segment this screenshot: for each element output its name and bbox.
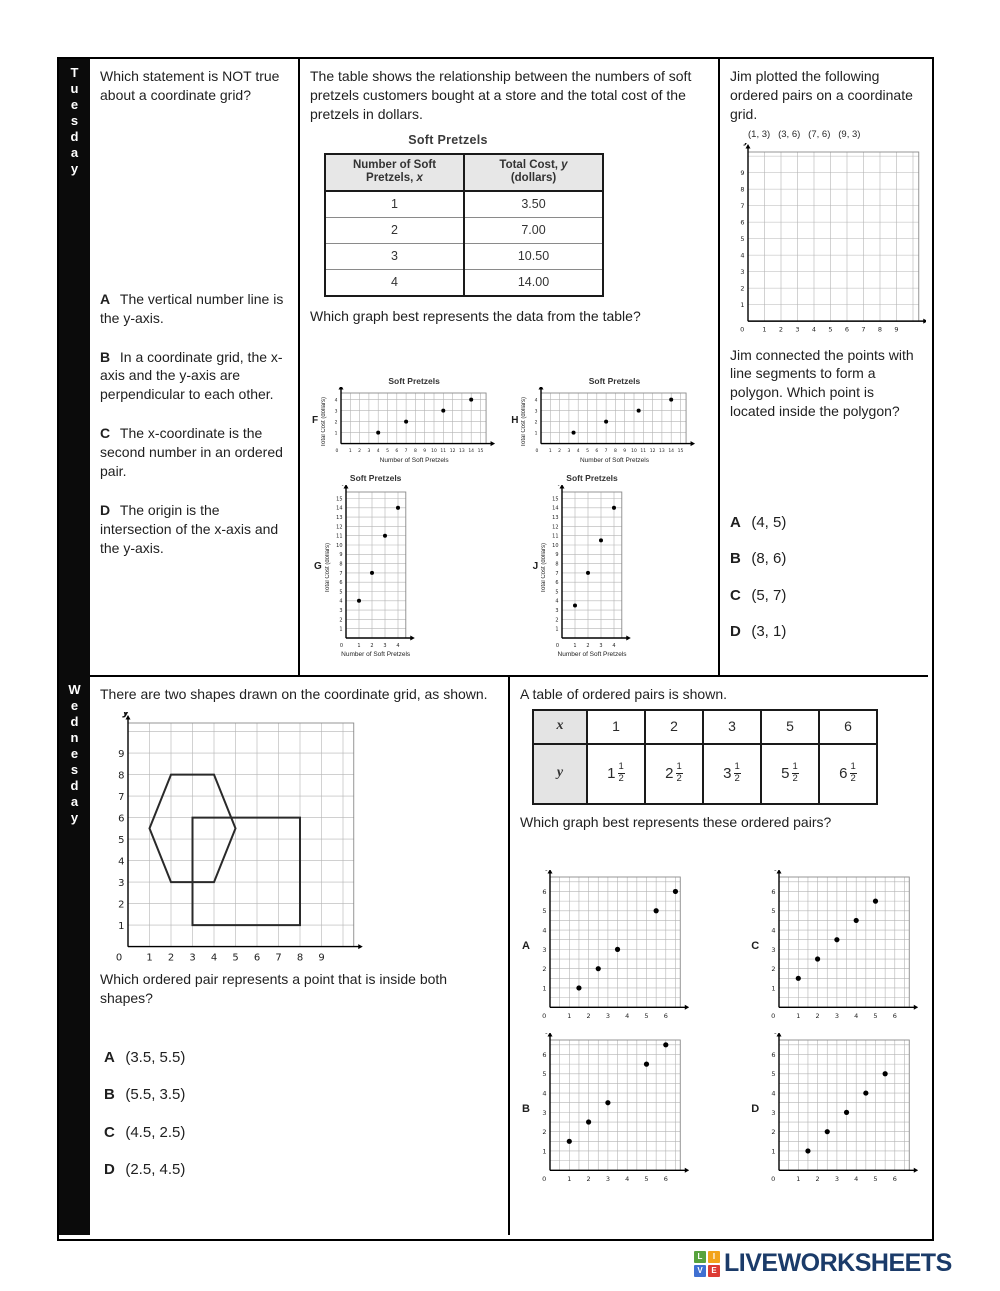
svg-text:6: 6 [254, 952, 260, 963]
tuesday-question-1-cell: Which statement is NOT true about a coor… [90, 59, 300, 677]
svg-text:3: 3 [600, 643, 603, 649]
graph-xlabel: Number of Soft Pretzels [333, 457, 495, 466]
choice-a[interactable]: A(3.5, 5.5) [104, 1048, 498, 1068]
svg-text:5: 5 [874, 1175, 878, 1183]
svg-text:7: 7 [275, 952, 281, 963]
svg-text:8: 8 [878, 326, 882, 334]
svg-text:9: 9 [555, 552, 558, 558]
svg-text:y: y [743, 143, 749, 146]
svg-text:3: 3 [606, 1175, 610, 1183]
svg-text:1: 1 [535, 430, 538, 436]
svg-text:10: 10 [552, 543, 558, 549]
choice-d[interactable]: DThe origin is the intersection of the x… [100, 501, 288, 558]
svg-text:6: 6 [555, 580, 558, 586]
svg-text:3: 3 [118, 878, 124, 889]
svg-text:4: 4 [535, 397, 538, 403]
liveworksheets-logo-icon: L I V E [694, 1251, 720, 1277]
question-text: Which ordered pair represents a point th… [100, 970, 498, 1008]
svg-text:4: 4 [625, 1175, 629, 1183]
logo-square-v: V [694, 1265, 706, 1277]
svg-text:6: 6 [664, 1012, 668, 1020]
graph-ylabel: Total Cost (dollars) [321, 397, 327, 447]
svg-text:3: 3 [772, 1109, 776, 1117]
svg-text:2: 2 [772, 1128, 776, 1136]
tuesday-question-3-cell: Jim plotted the following ordered pairs … [720, 59, 928, 677]
svg-text:1: 1 [796, 1175, 800, 1183]
svg-text:5: 5 [542, 907, 546, 915]
svg-text:8: 8 [339, 561, 342, 567]
choice-text: (3.5, 5.5) [125, 1049, 185, 1066]
column-header: Number of SoftPretzels, x [325, 154, 464, 192]
graph-xlabel: Number of Soft Pretzels [337, 651, 415, 660]
svg-text:1: 1 [740, 302, 744, 310]
logo-square-e: E [708, 1265, 720, 1277]
svg-text:2: 2 [168, 952, 174, 963]
svg-text:2: 2 [559, 448, 562, 454]
svg-text:3: 3 [189, 952, 195, 963]
choice-b[interactable]: B(8, 6) [730, 549, 918, 569]
choice-letter: D [104, 1161, 115, 1178]
svg-text:8: 8 [414, 448, 417, 454]
svg-text:3: 3 [339, 608, 342, 614]
graph-title: Soft Pretzels [553, 473, 631, 484]
svg-text:2: 2 [542, 965, 546, 973]
table-title: Soft Pretzels [310, 132, 586, 149]
svg-text:5: 5 [644, 1012, 648, 1020]
svg-text:2: 2 [118, 899, 124, 910]
svg-text:1: 1 [146, 952, 152, 963]
svg-text:1: 1 [574, 643, 577, 649]
svg-text:6: 6 [596, 448, 599, 454]
svg-text:5: 5 [874, 1012, 878, 1020]
wednesday-question-1-cell: There are two shapes drawn on the coordi… [90, 677, 510, 1235]
answer-choices: A(4, 5) B(8, 6) C(5, 7) D(3, 1) [730, 513, 918, 642]
svg-text:2: 2 [335, 419, 338, 425]
graph-g-plot: xy01234123456789101112131415 [331, 485, 415, 651]
ordered-pairs: (1, 3) (3, 6) (7, 6) (9, 3) [748, 129, 918, 142]
svg-text:5: 5 [772, 1070, 776, 1078]
wednesday-label: Wednesday [59, 683, 90, 824]
svg-text:14: 14 [552, 506, 558, 512]
svg-text:0: 0 [740, 326, 744, 334]
svg-text:4: 4 [577, 448, 580, 454]
graph-f-plot: xy01234567891011121314151234 [327, 387, 495, 457]
svg-text:6: 6 [118, 813, 124, 824]
svg-text:6: 6 [740, 219, 744, 227]
svg-text:15: 15 [678, 448, 684, 454]
svg-text:9: 9 [318, 952, 324, 963]
table-row-x: x 1 2 3 5 6 [533, 710, 877, 744]
svg-text:7: 7 [339, 571, 342, 577]
svg-text:2: 2 [358, 448, 361, 454]
graph-letter: G [314, 560, 322, 574]
graph-c-plot: xy0123456123456 [763, 870, 918, 1023]
svg-text:9: 9 [118, 749, 124, 760]
graph-ylabel: Total Cost (dollars) [521, 397, 527, 447]
tuesday-label: Tuesday [59, 66, 90, 175]
svg-text:5: 5 [772, 907, 776, 915]
svg-text:8: 8 [555, 561, 558, 567]
choice-text: (4.5, 2.5) [125, 1124, 185, 1141]
choice-letter: B [104, 1086, 115, 1103]
graph-j-plot: xy01234123456789101112131415 [547, 485, 631, 651]
choice-text: The vertical number line is the y-axis. [100, 291, 283, 326]
svg-text:5: 5 [386, 448, 389, 454]
svg-text:3: 3 [772, 946, 776, 954]
svg-text:6: 6 [542, 1051, 546, 1059]
choice-b[interactable]: BIn a coordinate grid, the x-axis and th… [100, 348, 288, 405]
svg-text:12: 12 [552, 524, 558, 530]
svg-text:15: 15 [478, 448, 484, 454]
svg-text:5: 5 [542, 1070, 546, 1078]
svg-text:y: y [545, 870, 551, 871]
choice-text: (2.5, 4.5) [125, 1161, 185, 1178]
svg-text:14: 14 [669, 448, 675, 454]
table-row: 414.00 [325, 269, 603, 295]
svg-text:13: 13 [552, 515, 558, 521]
choice-letter: A [104, 1049, 115, 1066]
choice-text: In a coordinate grid, the x-axis and the… [100, 349, 283, 403]
table-row: 27.00 [325, 218, 603, 244]
svg-text:7: 7 [605, 448, 608, 454]
svg-text:2: 2 [587, 643, 590, 649]
svg-text:6: 6 [772, 1051, 776, 1059]
graph-letter: A [522, 939, 530, 954]
svg-text:4: 4 [118, 856, 124, 867]
svg-text:5: 5 [644, 1175, 648, 1183]
graph-h-plot: xy01234567891011121314151234 [527, 387, 695, 457]
graph-option-j[interactable]: J Soft Pretzels Total Cost (dollars) xy0… [533, 473, 631, 659]
svg-text:5: 5 [118, 835, 124, 846]
choice-d[interactable]: D(2.5, 4.5) [104, 1160, 498, 1180]
svg-text:6: 6 [395, 448, 398, 454]
mixed-number: 212 [665, 762, 683, 785]
graph-a-plot: xy0123456123456 [534, 870, 689, 1023]
svg-text:8: 8 [614, 448, 617, 454]
question-intro: The table shows the relationship between… [310, 67, 708, 124]
svg-text:3: 3 [542, 1109, 546, 1117]
question-text: Which graph best represents the data fro… [310, 307, 708, 326]
svg-text:1: 1 [772, 984, 776, 992]
choice-text: The origin is the intersection of the x-… [100, 502, 278, 556]
choice-c[interactable]: C(4.5, 2.5) [104, 1123, 498, 1143]
choice-b[interactable]: B(5.5, 3.5) [104, 1085, 498, 1105]
svg-text:2: 2 [816, 1012, 820, 1020]
svg-text:0: 0 [536, 448, 539, 454]
graph-option-h[interactable]: H Soft Pretzels Total Cost (dollars) xy0… [511, 376, 695, 466]
liveworksheets-logo[interactable]: L I V E LIVEWORKSHEETS [694, 1249, 952, 1278]
svg-text:2: 2 [779, 326, 783, 334]
svg-text:5: 5 [586, 448, 589, 454]
choice-c[interactable]: C(5, 7) [730, 586, 918, 606]
graph-letter: B [522, 1102, 530, 1117]
svg-text:3: 3 [335, 408, 338, 414]
svg-text:4: 4 [772, 926, 776, 934]
graphs-row-b-d: B xy0123456123456 D xy0123456123456 [522, 1033, 918, 1186]
svg-text:4: 4 [625, 1012, 629, 1020]
svg-text:1: 1 [357, 643, 360, 649]
svg-text:15: 15 [336, 496, 342, 502]
svg-text:2: 2 [740, 285, 744, 293]
svg-text:15: 15 [552, 496, 558, 502]
question-text: Which statement is NOT true about a coor… [100, 67, 288, 105]
svg-text:8: 8 [297, 952, 303, 963]
choice-d[interactable]: D(3, 1) [730, 622, 918, 642]
svg-text:5: 5 [232, 952, 238, 963]
graph-title: Soft Pretzels [337, 473, 415, 484]
svg-text:0: 0 [336, 448, 339, 454]
mixed-number: 112 [607, 762, 625, 785]
day-band: Tuesday Wednesday [59, 59, 90, 1235]
svg-text:1: 1 [567, 1012, 571, 1020]
svg-text:1: 1 [118, 921, 124, 932]
mixed-number: 612 [839, 762, 857, 785]
svg-text:2: 2 [370, 643, 373, 649]
worksheet-page: Tuesday Wednesday Which statement is NOT… [0, 0, 1000, 1291]
question-text: Jim connected the points with line segme… [730, 346, 918, 422]
logo-square-i: I [708, 1251, 720, 1263]
graph-b-plot: xy0123456123456 [534, 1033, 689, 1186]
svg-text:2: 2 [542, 1128, 546, 1136]
graph-d-plot: xy0123456123456 [763, 1033, 918, 1186]
shapes-grid-plot: xy0123456789123456789 [108, 712, 363, 966]
graph-title: Soft Pretzels [333, 376, 495, 387]
svg-text:1: 1 [549, 448, 552, 454]
svg-text:3: 3 [555, 608, 558, 614]
choice-text: (4, 5) [751, 514, 786, 531]
svg-text:4: 4 [211, 952, 217, 963]
svg-text:6: 6 [893, 1012, 897, 1020]
choice-c[interactable]: CThe x-coordinate is the second number i… [100, 424, 288, 481]
svg-text:1: 1 [339, 626, 342, 632]
column-header: Total Cost, y(dollars) [464, 154, 603, 192]
svg-text:9: 9 [423, 448, 426, 454]
svg-text:9: 9 [624, 448, 627, 454]
choice-text: (3, 1) [751, 623, 786, 640]
svg-text:4: 4 [542, 1090, 546, 1098]
svg-text:11: 11 [336, 533, 342, 539]
svg-text:9: 9 [740, 170, 744, 178]
svg-text:13: 13 [659, 448, 665, 454]
svg-text:6: 6 [845, 326, 849, 334]
graphs-row-f-h: F Soft Pretzels Total Cost (dollars) xy0… [312, 376, 708, 466]
svg-text:1: 1 [542, 1147, 546, 1155]
graph-title: Soft Pretzels [533, 376, 695, 387]
choice-text: (5.5, 3.5) [125, 1086, 185, 1103]
svg-text:10: 10 [632, 448, 638, 454]
svg-text:3: 3 [740, 269, 744, 277]
choice-letter: C [730, 587, 741, 604]
svg-text:3: 3 [835, 1175, 839, 1183]
svg-text:14: 14 [336, 506, 342, 512]
choice-a[interactable]: AThe vertical number line is the y-axis. [100, 290, 288, 328]
svg-text:2: 2 [339, 617, 342, 623]
choice-text: The x-coordinate is the second number in… [100, 425, 283, 479]
svg-text:12: 12 [650, 448, 656, 454]
svg-text:0: 0 [542, 1012, 546, 1020]
graph-letter: C [751, 939, 759, 954]
svg-text:7: 7 [118, 792, 124, 803]
svg-text:11: 11 [552, 533, 558, 539]
svg-text:4: 4 [613, 643, 616, 649]
svg-text:y: y [545, 1033, 551, 1034]
svg-text:7: 7 [555, 571, 558, 577]
svg-text:3: 3 [606, 1012, 610, 1020]
svg-text:y: y [122, 712, 130, 718]
choice-letter: D [730, 623, 741, 640]
question-intro: There are two shapes drawn on the coordi… [100, 685, 498, 704]
svg-text:13: 13 [459, 448, 465, 454]
logo-square-l: L [694, 1251, 706, 1263]
svg-text:11: 11 [641, 448, 647, 454]
table-row: 310.50 [325, 243, 603, 269]
svg-text:1: 1 [772, 1147, 776, 1155]
svg-text:1: 1 [349, 448, 352, 454]
choice-letter: A [730, 514, 741, 531]
svg-text:3: 3 [535, 408, 538, 414]
choice-text: (5, 7) [751, 587, 786, 604]
svg-text:4: 4 [542, 926, 546, 934]
svg-text:7: 7 [861, 326, 865, 334]
graphs-row-g-j: G Soft Pretzels Total Cost (dollars) xy0… [314, 473, 708, 659]
svg-text:7: 7 [740, 203, 744, 211]
row-header-x: x [533, 710, 587, 744]
svg-text:12: 12 [450, 448, 456, 454]
graph-letter: H [511, 414, 518, 428]
svg-text:1: 1 [542, 984, 546, 992]
question-intro: A table of ordered pairs is shown. [520, 685, 918, 704]
jim-coordinate-grid: xy0123456789123456789 [732, 143, 918, 341]
svg-text:2: 2 [586, 1012, 590, 1020]
svg-text:4: 4 [335, 397, 338, 403]
graph-letter: F [312, 414, 318, 428]
svg-text:6: 6 [339, 580, 342, 586]
svg-text:1: 1 [796, 1012, 800, 1020]
liveworksheets-logo-text: LIVEWORKSHEETS [724, 1249, 952, 1278]
svg-text:0: 0 [556, 643, 559, 649]
mixed-number: 312 [723, 762, 741, 785]
svg-text:2: 2 [772, 965, 776, 973]
table-row: 13.50 [325, 191, 603, 217]
graph-option-b[interactable]: B xy0123456123456 [522, 1033, 689, 1186]
svg-text:6: 6 [772, 888, 776, 896]
svg-text:6: 6 [664, 1175, 668, 1183]
graph-option-g[interactable]: G Soft Pretzels Total Cost (dollars) xy0… [314, 473, 415, 659]
svg-text:3: 3 [368, 448, 371, 454]
choice-letter: A [100, 291, 110, 307]
graph-letter: D [751, 1102, 759, 1117]
shapes-coordinate-grid: xy0123456789123456789 [108, 712, 498, 970]
choice-letter: C [100, 425, 110, 441]
graph-xlabel: Number of Soft Pretzels [533, 457, 695, 466]
svg-text:y: y [775, 1033, 781, 1034]
svg-text:3: 3 [542, 946, 546, 954]
wednesday-question-2-cell: A table of ordered pairs is shown. x 1 2… [510, 677, 928, 1235]
svg-text:5: 5 [828, 326, 832, 334]
svg-text:2: 2 [555, 617, 558, 623]
svg-text:4: 4 [854, 1175, 858, 1183]
svg-text:2: 2 [535, 419, 538, 425]
ordered-pairs-table: x 1 2 3 5 6 y 112 212 312 512 612 [532, 709, 878, 805]
tuesday-question-2-cell: The table shows the relationship between… [300, 59, 720, 677]
graph-option-a[interactable]: A xy0123456123456 [522, 870, 689, 1023]
svg-text:2: 2 [816, 1175, 820, 1183]
choice-letter: D [100, 502, 110, 518]
row-header-y: y [533, 744, 587, 804]
svg-text:4: 4 [339, 599, 342, 605]
svg-text:4: 4 [555, 599, 558, 605]
question-text: Which graph best represents these ordere… [520, 813, 918, 832]
choice-a[interactable]: A(4, 5) [730, 513, 918, 533]
table-row-y: y 112 212 312 512 612 [533, 744, 877, 804]
svg-text:6: 6 [893, 1175, 897, 1183]
svg-text:5: 5 [740, 236, 744, 244]
svg-text:y: y [775, 870, 781, 871]
svg-text:0: 0 [116, 952, 122, 963]
svg-text:0: 0 [771, 1012, 775, 1020]
svg-text:4: 4 [740, 252, 744, 260]
svg-text:3: 3 [383, 643, 386, 649]
jim-grid-plot: xy0123456789123456789 [732, 143, 926, 336]
graph-option-f[interactable]: F Soft Pretzels Total Cost (dollars) xy0… [312, 376, 495, 466]
svg-text:3: 3 [795, 326, 799, 334]
worksheet-table: Tuesday Wednesday Which statement is NOT… [57, 57, 934, 1241]
svg-text:3: 3 [835, 1012, 839, 1020]
svg-text:3: 3 [568, 448, 571, 454]
svg-text:9: 9 [894, 326, 898, 334]
svg-text:14: 14 [468, 448, 474, 454]
svg-text:4: 4 [812, 326, 816, 334]
svg-text:8: 8 [740, 186, 744, 194]
choice-letter: C [104, 1124, 115, 1141]
graph-xlabel: Number of Soft Pretzels [553, 651, 631, 660]
svg-text:7: 7 [405, 448, 408, 454]
svg-text:4: 4 [772, 1090, 776, 1098]
svg-text:4: 4 [396, 643, 399, 649]
choice-text: (8, 6) [751, 550, 786, 567]
svg-text:11: 11 [441, 448, 447, 454]
svg-text:1: 1 [762, 326, 766, 334]
svg-text:5: 5 [555, 589, 558, 595]
svg-text:1: 1 [567, 1175, 571, 1183]
answer-choices: AThe vertical number line is the y-axis.… [100, 290, 288, 558]
graph-letter: J [533, 560, 539, 574]
svg-text:0: 0 [542, 1175, 546, 1183]
answer-graphs: A xy0123456123456 C xy0123456123456 B xy… [520, 870, 918, 1187]
svg-text:4: 4 [377, 448, 380, 454]
svg-text:9: 9 [339, 552, 342, 558]
svg-text:13: 13 [336, 515, 342, 521]
svg-text:6: 6 [542, 888, 546, 896]
answer-choices: A(3.5, 5.5) B(5.5, 3.5) C(4.5, 2.5) D(2.… [104, 1048, 498, 1180]
question-intro: Jim plotted the following ordered pairs … [730, 67, 918, 124]
graphs-row-a-c: A xy0123456123456 C xy0123456123456 [522, 870, 918, 1023]
svg-text:2: 2 [586, 1175, 590, 1183]
svg-text:1: 1 [555, 626, 558, 632]
svg-text:4: 4 [854, 1012, 858, 1020]
svg-text:0: 0 [771, 1175, 775, 1183]
svg-text:0: 0 [340, 643, 343, 649]
svg-text:10: 10 [431, 448, 437, 454]
svg-text:1: 1 [335, 430, 338, 436]
graph-option-d[interactable]: D xy0123456123456 [751, 1033, 918, 1186]
graph-ylabel: Total Cost (dollars) [541, 543, 547, 593]
choice-letter: B [100, 349, 110, 365]
pretzels-data-table: Number of SoftPretzels, x Total Cost, y(… [324, 153, 604, 297]
graph-option-c[interactable]: C xy0123456123456 [751, 870, 918, 1023]
svg-text:5: 5 [339, 589, 342, 595]
choice-letter: B [730, 550, 741, 567]
